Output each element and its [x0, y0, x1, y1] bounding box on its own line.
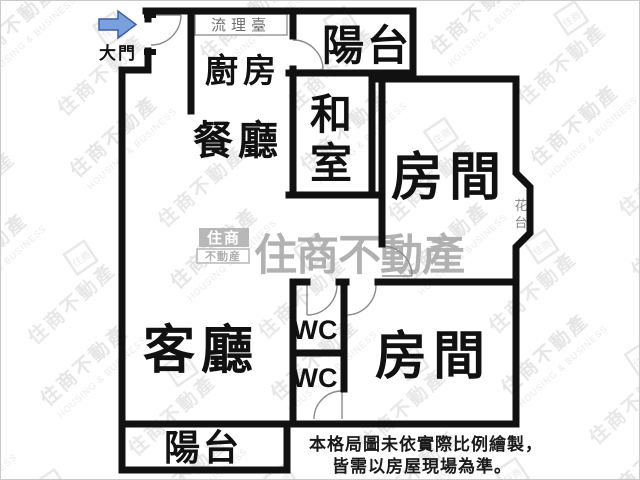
label-kitchen: 廚房 — [205, 52, 281, 89]
label-balcony-top: 陽台 — [322, 22, 412, 69]
label-bedroom-bottom: 房間 — [375, 328, 491, 386]
watermark-logo-bottom-text: 不動産 — [205, 249, 241, 263]
label-living: 客廳 — [143, 322, 259, 380]
label-balcony-bottom: 陽台 — [164, 427, 242, 468]
label-flower-2: 台 — [514, 215, 527, 230]
label-washitsu-2: 室 — [310, 140, 352, 187]
disclaimer-line1: 本格局圖未依實際比例繪製， — [309, 434, 543, 454]
label-flower-1: 花 — [514, 198, 527, 213]
floorplan-svg: 住商不動產 HOUSING & BUSINESS 住商 住商不動產 住商 不動産… — [1, 1, 640, 480]
entry-label: 大門 — [99, 43, 137, 63]
label-bedroom-top: 房間 — [391, 149, 507, 207]
label-wc-top: WC — [293, 315, 338, 345]
disclaimer-line2: 皆需以房屋現場為準。 — [332, 456, 512, 476]
floorplan-image: 住商不動產 HOUSING & BUSINESS 住商 住商不動產 住商 不動産… — [0, 0, 640, 480]
label-washitsu-1: 和 — [310, 91, 352, 138]
counter-label: 流理臺 — [211, 17, 271, 34]
label-dining: 餐廳 — [193, 118, 283, 163]
watermark-brand-large: 住商不動產 — [254, 232, 464, 280]
label-wc-bottom: WC — [293, 363, 338, 393]
kitchen-counter: 流理臺 — [195, 14, 287, 35]
watermark-logo-top-text: 住商 — [207, 229, 241, 247]
